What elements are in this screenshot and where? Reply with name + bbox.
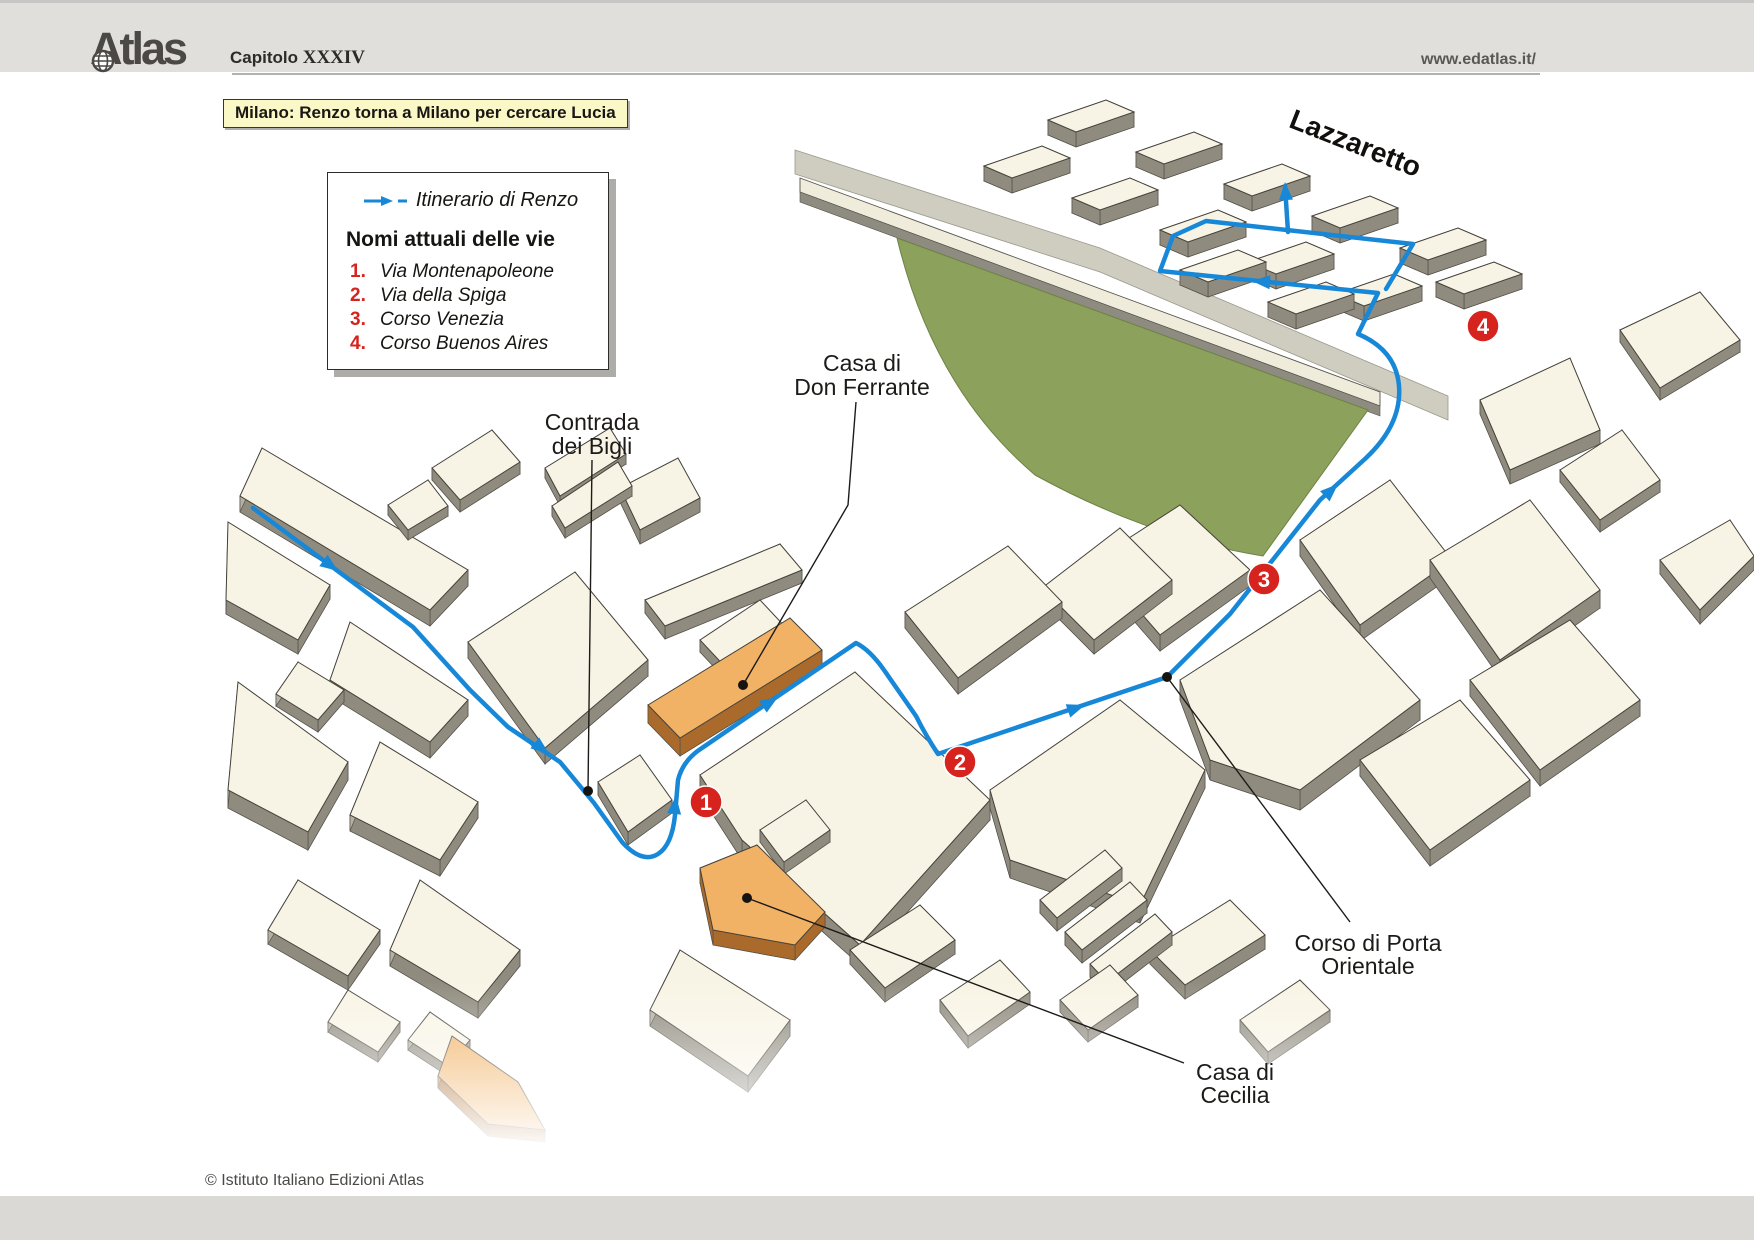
route-arrow-icon (362, 194, 408, 208)
label-porta-orientale-line2: Orientale (1321, 953, 1414, 979)
label-lazzaretto: Lazzaretto (1285, 103, 1425, 183)
legend-street-4: 4. Corso Buenos Aires (346, 332, 594, 355)
page-header: Atlas Capitolo XXXIV www.edatlas.it/ (0, 0, 1754, 72)
legend-street-list: 1. Via Montenapoleone 2. Via della Spiga… (346, 260, 594, 355)
route-marker-3: 3 (1248, 563, 1280, 595)
route-marker-1: 1 (690, 786, 722, 818)
header-divider (232, 73, 1540, 75)
atlas-logo: Atlas (90, 29, 220, 73)
label-don-ferrante-line1: Casa di (823, 350, 901, 376)
label-casa-cecilia-line2: Cecilia (1200, 1082, 1269, 1108)
svg-text:2: 2 (954, 750, 966, 775)
chapter-title: Capitolo XXXIV (230, 47, 365, 69)
milan-map-canvas: Lazzaretto Casa di Don Ferrante Contrada… (0, 0, 1754, 1240)
label-contrada-bigli-line2: dei Bigli (552, 433, 633, 459)
publisher-url: www.edatlas.it/ (1421, 51, 1536, 69)
copyright-text: © Istituto Italiano Edizioni Atlas (205, 1172, 424, 1190)
label-don-ferrante-line2: Don Ferrante (794, 374, 930, 400)
svg-text:3: 3 (1258, 567, 1270, 592)
legend-itinerary-row: Itinerario di Renzo (346, 189, 594, 212)
legend-itinerary-label: Itinerario di Renzo (416, 189, 578, 212)
legend-box: Itinerario di Renzo Nomi attuali delle v… (327, 172, 609, 370)
legend-street-2: 2. Via della Spiga (346, 284, 594, 307)
route-marker-4: 4 (1467, 310, 1499, 342)
page-footer-bar (0, 1196, 1754, 1240)
legend-heading: Nomi attuali delle vie (346, 228, 594, 252)
legend-street-1: 1. Via Montenapoleone (346, 260, 594, 283)
svg-text:4: 4 (1477, 314, 1490, 339)
globe-icon (91, 49, 115, 73)
route-marker-2: 2 (944, 746, 976, 778)
legend-street-3: 3. Corso Venezia (346, 308, 594, 331)
label-contrada-bigli-line1: Contrada (545, 409, 640, 435)
svg-text:1: 1 (700, 790, 712, 815)
map-title: Milano: Renzo torna a Milano per cercare… (223, 99, 628, 128)
